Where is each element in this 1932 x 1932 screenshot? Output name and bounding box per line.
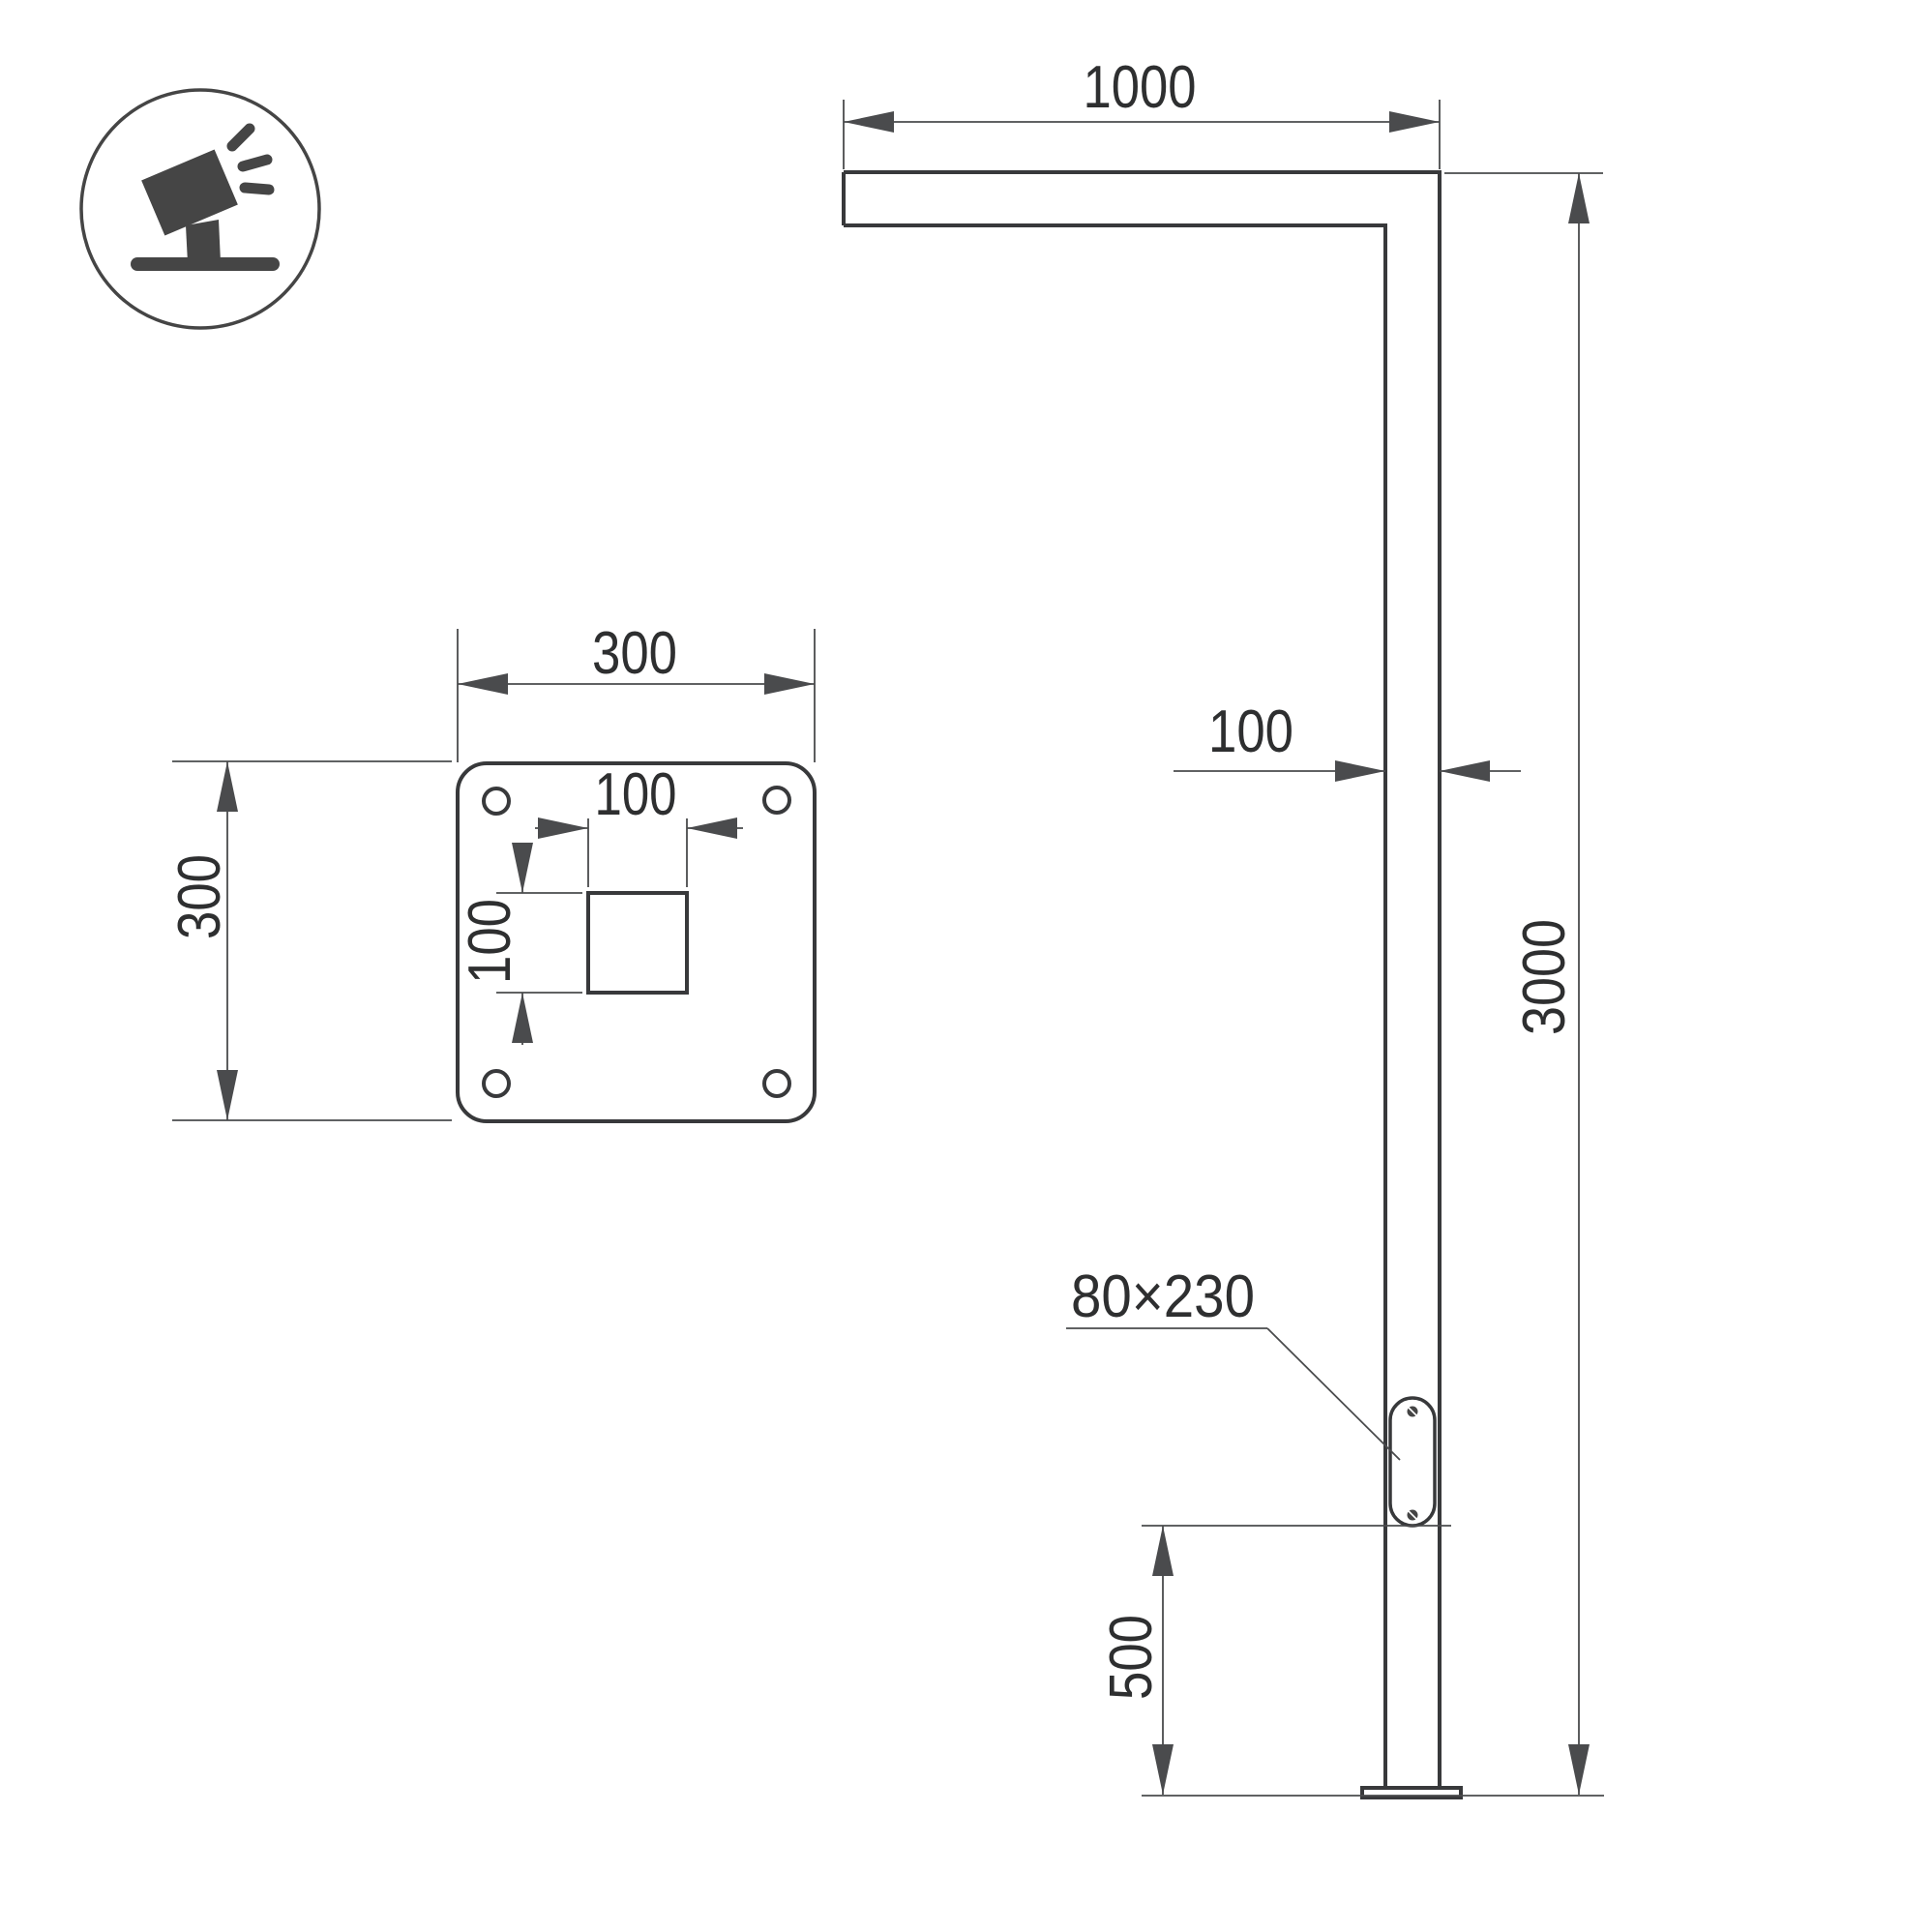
dim-hole-height-label: 100 <box>457 899 523 984</box>
dim-arm-length-label: 1000 <box>1084 54 1197 121</box>
dim-door-height: 500 <box>1098 1526 1451 1795</box>
dim-plate-width-label: 300 <box>592 620 677 687</box>
light-ray-icon <box>243 160 267 166</box>
access-door <box>1390 1398 1435 1526</box>
door-size-callout: 80×230 <box>1066 1263 1400 1460</box>
light-ray-icon <box>245 188 269 190</box>
pole-front-view <box>844 172 1461 1798</box>
dim-plate-height: 300 <box>166 761 452 1120</box>
dim-pole-width-label: 100 <box>1208 698 1293 765</box>
dim-arm-length: 1000 <box>844 54 1440 169</box>
dim-door-height-label: 500 <box>1098 1615 1165 1700</box>
floodlight-base <box>131 257 280 271</box>
tilted-floodlight-icon <box>81 90 319 328</box>
dim-plate-width: 300 <box>458 620 815 762</box>
door-size-label: 80×230 <box>1071 1263 1255 1330</box>
dim-pole-width: 100 <box>1174 698 1521 771</box>
leader-line <box>1267 1328 1400 1460</box>
dim-pole-height-label: 3000 <box>1511 919 1578 1035</box>
dim-plate-height-label: 300 <box>166 854 233 939</box>
dim-hole-width-label: 100 <box>595 761 677 828</box>
pole-technical-drawing: 1000 100 3000 80×230 500 300 <box>0 0 1932 1932</box>
floodlight-stand <box>186 220 221 263</box>
dim-pole-height: 3000 <box>1142 173 1604 1796</box>
technical-drawing-canvas: 1000 100 3000 80×230 500 300 <box>0 0 1932 1932</box>
pole-outline <box>844 172 1440 1788</box>
